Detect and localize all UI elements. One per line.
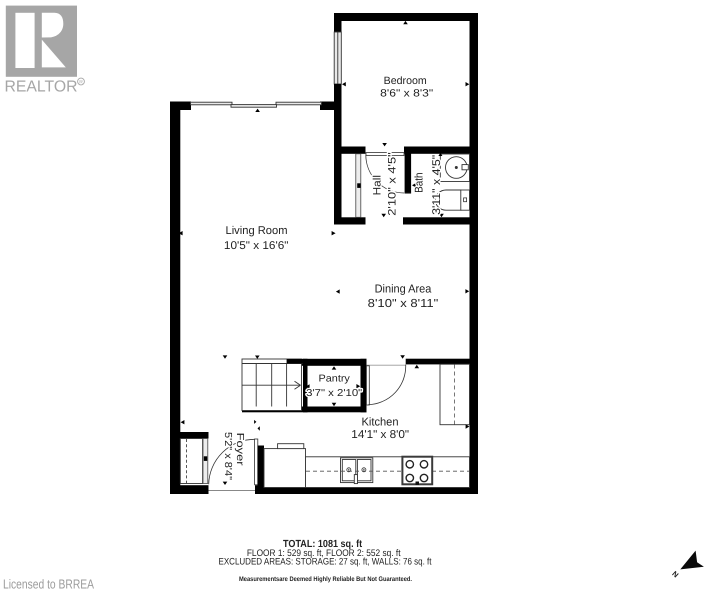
svg-text:10'5" x 16'6": 10'5" x 16'6": [224, 240, 289, 252]
svg-text:8'6" x 8'3": 8'6" x 8'3": [380, 88, 433, 100]
svg-text:Foyer: Foyer: [234, 433, 245, 467]
svg-text:3'7" x 2'10": 3'7" x 2'10": [306, 388, 363, 399]
svg-text:Kitchen: Kitchen: [362, 417, 399, 429]
svg-text:Bath: Bath: [414, 173, 426, 193]
svg-text:R: R: [79, 80, 83, 86]
svg-text:8'10" x 8'11": 8'10" x 8'11": [368, 297, 439, 310]
svg-text:14'1" x 8'0": 14'1" x 8'0": [351, 429, 409, 441]
svg-text:Licensed to BRREA: Licensed to BRREA: [3, 577, 94, 592]
svg-text:Bedroom: Bedroom: [384, 75, 427, 87]
svg-text:EXCLUDED AREAS: STORAGE: 27 sq: EXCLUDED AREAS: STORAGE: 27 sq. ft, WALL…: [219, 557, 432, 568]
svg-text:2'10" x 4'5": 2'10" x 4'5": [387, 152, 399, 216]
svg-text:Dining Area: Dining Area: [375, 282, 432, 295]
svg-text:5'2" x 8'4": 5'2" x 8'4": [222, 432, 233, 480]
svg-text:Pantry: Pantry: [319, 373, 350, 384]
svg-text:3'11" x 4'5": 3'11" x 4'5": [431, 155, 443, 215]
svg-text:REALTOR: REALTOR: [5, 79, 78, 96]
svg-text:Living Room: Living Room: [226, 225, 288, 237]
svg-text:Hall: Hall: [371, 175, 383, 195]
svg-text:Measurementsare Deemed Highly: Measurementsare Deemed Highly Reliable B…: [239, 576, 412, 583]
